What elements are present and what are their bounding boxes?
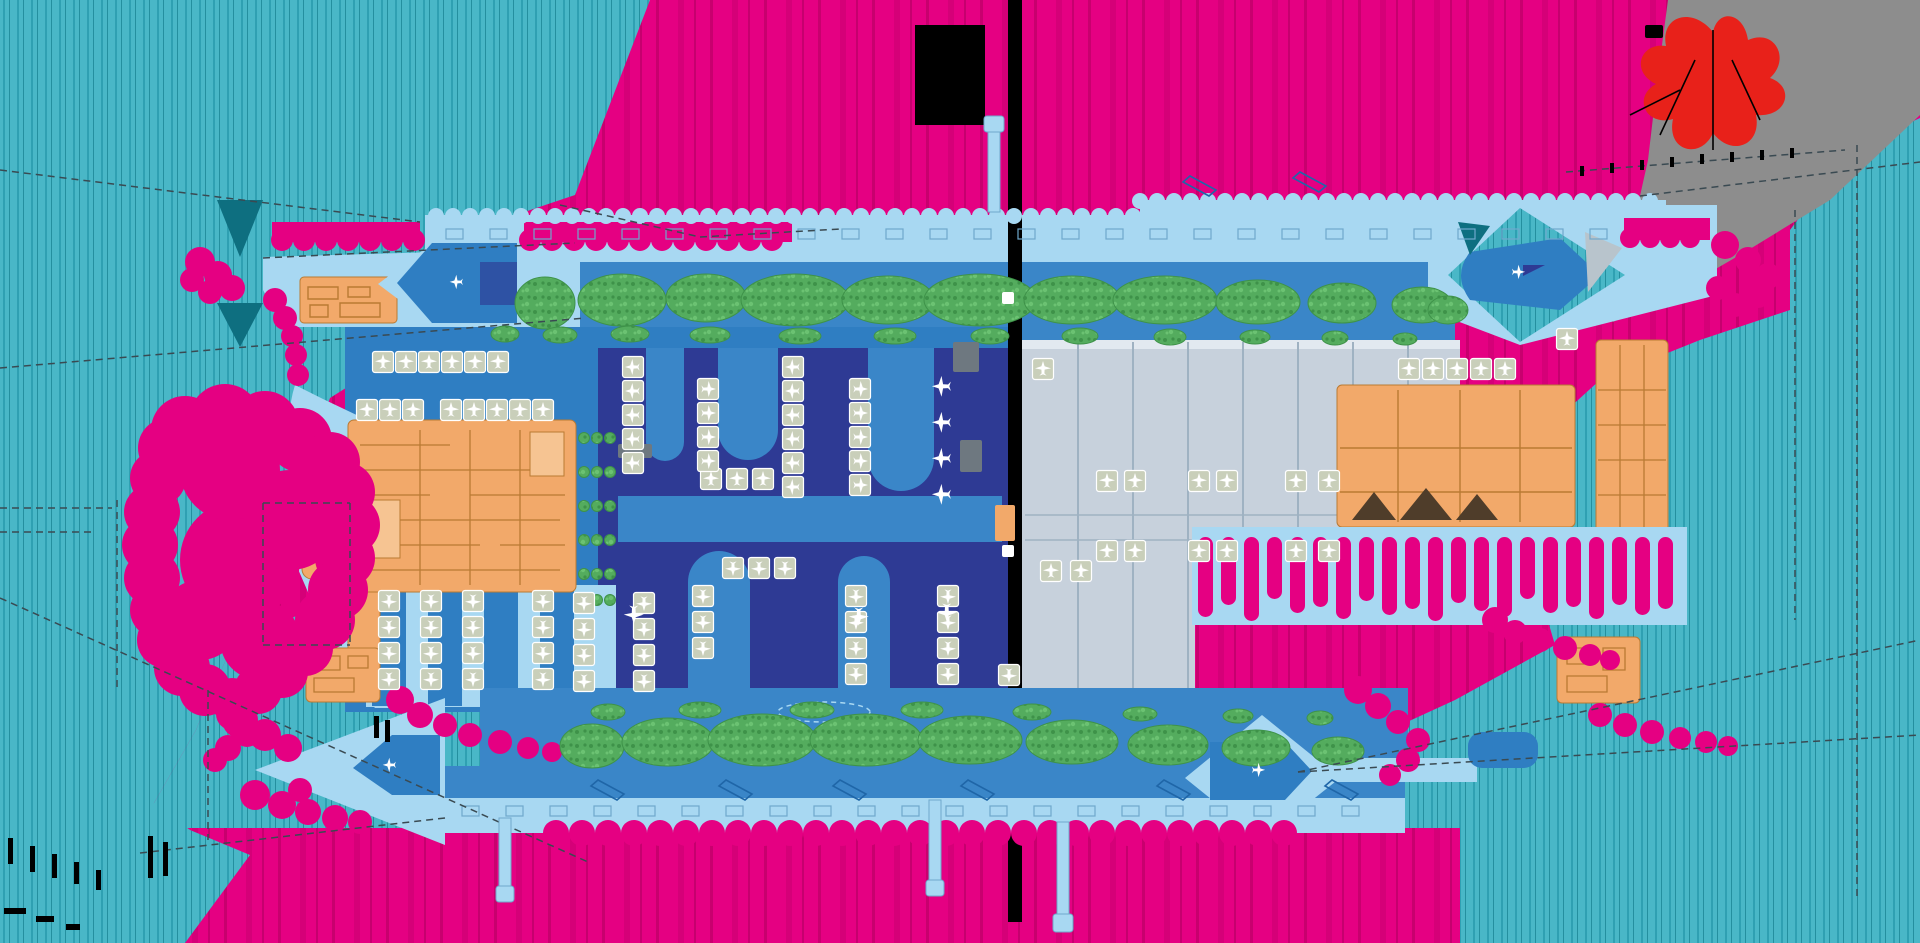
tree-comb-tooth: [1451, 537, 1466, 603]
tree-scallop: [547, 208, 563, 224]
tree-comb-tooth: [1474, 537, 1489, 611]
tree-scallop: [569, 820, 595, 846]
vegetation-blob: [1669, 727, 1691, 749]
se-end-blob: [1468, 732, 1538, 768]
vegetation-blob: [295, 799, 321, 825]
gate-stand-icon: [574, 645, 595, 666]
tree-comb-tooth: [1267, 537, 1282, 599]
tree-scallop: [1489, 193, 1505, 209]
tree-icon: [579, 569, 590, 580]
vegetation-blob: [542, 742, 562, 762]
gate-stand-icon: [1319, 471, 1340, 492]
tree-scallop: [1353, 193, 1369, 209]
gate-stand-icon: [1041, 561, 1062, 582]
tree-scallop: [595, 820, 621, 846]
garden-lawn: [810, 714, 922, 766]
tree-scallop: [1217, 193, 1233, 209]
gate-stand-icon: [938, 638, 959, 659]
garden-lawn: [1222, 730, 1290, 766]
tree-scallop: [1591, 193, 1607, 209]
jetty-head: [496, 886, 514, 902]
gate-stand-icon: [1217, 541, 1238, 562]
tree-scallop: [541, 229, 563, 251]
tree-scallop: [1625, 193, 1641, 209]
gate-stand-icon: [379, 617, 400, 638]
gate-stand-icon: [850, 451, 871, 472]
tree-scallop: [1166, 193, 1182, 209]
tree-scallop: [829, 820, 855, 846]
gate-stand-icon: [698, 379, 719, 400]
garden-lawn: [578, 274, 666, 326]
survey-tick: [66, 924, 80, 930]
tree-scallop: [1141, 820, 1167, 846]
vegetation-blob: [1396, 748, 1420, 772]
survey-tick: [374, 716, 379, 738]
tree-scallop: [563, 229, 585, 251]
tree-scallop: [700, 208, 716, 224]
gate-stand-icon: [464, 400, 485, 421]
vegetation-blob: [288, 778, 312, 802]
upper-channel-1: [646, 348, 684, 461]
vegetation-blob: [274, 734, 302, 762]
gate-stand-icon: [463, 643, 484, 664]
gate-stand-icon: [783, 429, 804, 450]
gate-stand-icon: [1399, 359, 1420, 380]
tree-scallop: [683, 208, 699, 224]
garden-lawn: [741, 274, 849, 326]
tree-scallop: [381, 229, 403, 251]
tree-scallop: [1540, 193, 1556, 209]
garden-lawn: [1307, 711, 1333, 725]
tree-scallop: [462, 208, 478, 224]
tree-comb-tooth: [1612, 537, 1627, 605]
gate-stand-icon: [783, 477, 804, 498]
garden-lawn: [1154, 329, 1186, 345]
gate-stand-icon: [1557, 329, 1578, 350]
gate-stand-icon: [533, 669, 554, 690]
tree-scallop: [802, 208, 818, 224]
tree-scallop: [819, 208, 835, 224]
garden-lawn: [901, 702, 943, 718]
gate-stand-icon: [421, 591, 442, 612]
tree-scallop: [1455, 193, 1471, 209]
gate-stand-icon: [698, 427, 719, 448]
tree-scallop: [803, 820, 829, 846]
tree-scallop: [739, 229, 761, 251]
gate-stand-icon: [1125, 471, 1146, 492]
vegetation-blob: [488, 730, 512, 754]
garden-lawn: [790, 702, 834, 718]
gate-stand-icon: [380, 400, 401, 421]
tree-scallop: [1234, 193, 1250, 209]
garden-lawn: [1024, 276, 1120, 324]
tree-comb-tooth: [1405, 537, 1420, 609]
tree-scallop: [479, 208, 495, 224]
tree-scallop: [853, 208, 869, 224]
tree-scallop: [1125, 208, 1141, 224]
tree-icon: [592, 501, 603, 512]
jetty-head: [1053, 914, 1073, 932]
garden-lawn: [842, 276, 934, 324]
tree-scallop: [1023, 208, 1039, 224]
tree-scallop: [1219, 820, 1245, 846]
tree-scallop: [1167, 820, 1193, 846]
gate-stand-icon: [850, 427, 871, 448]
garden-lawn: [690, 327, 730, 343]
tree-scallop: [881, 820, 907, 846]
vegetation-blob: [1503, 620, 1527, 644]
tree-icon: [579, 433, 590, 444]
phase-marker-block: [915, 25, 985, 125]
upper-channel-3: [868, 348, 934, 491]
vegetation-blob: [180, 268, 204, 292]
gate-stand-icon: [379, 591, 400, 612]
tree-icon: [592, 433, 603, 444]
vegetation-blob: [433, 713, 457, 737]
vegetation-blob: [322, 805, 348, 831]
gate-stand-icon: [1423, 359, 1444, 380]
tree-scallop: [777, 820, 803, 846]
tree-scallop: [651, 229, 673, 251]
gate-stand-icon: [488, 352, 509, 373]
tree-scallop: [629, 229, 651, 251]
vegetation-blob: [1600, 650, 1620, 670]
garden-lawn: [924, 274, 1036, 326]
gate-stand-icon: [846, 612, 867, 633]
tree-scallop: [855, 820, 881, 846]
garden-lawn: [1062, 328, 1098, 344]
gate-stand-icon: [1097, 471, 1118, 492]
east-orange-tall-building: [1596, 340, 1668, 532]
gate-stand-icon: [510, 400, 531, 421]
upper-channel-2: [718, 348, 778, 460]
tree-scallop: [887, 208, 903, 224]
tree-scallop: [673, 820, 699, 846]
garden-lawn: [1428, 296, 1468, 324]
tree-scallop: [428, 208, 444, 224]
gate-stand-icon: [533, 643, 554, 664]
gate-stand-icon: [1471, 359, 1492, 380]
gate-stand-icon: [727, 469, 748, 490]
gate-stand-icon: [574, 671, 595, 692]
tree-scallop: [673, 229, 695, 251]
survey-tick: [74, 862, 79, 884]
gate-stand-icon: [783, 357, 804, 378]
tree-icon: [592, 467, 603, 478]
garden-lawn: [1322, 331, 1348, 345]
gate-stand-icon: [846, 586, 867, 607]
gate-stand-icon: [693, 612, 714, 633]
gate-stand-icon: [1319, 541, 1340, 562]
tree-scallop: [607, 229, 629, 251]
tree-scallop: [1091, 208, 1107, 224]
survey-tick: [4, 908, 26, 914]
tree-scallop: [585, 229, 607, 251]
tree-icon: [605, 501, 616, 512]
tree-scallop: [768, 208, 784, 224]
gate-stand-icon: [698, 403, 719, 424]
garden-lawn: [1240, 330, 1270, 344]
tree-scallop: [904, 208, 920, 224]
tree-scallop: [1680, 228, 1700, 248]
gate-stand-icon: [1189, 541, 1210, 562]
tree-scallop: [725, 820, 751, 846]
tree-scallop: [666, 208, 682, 224]
gate-stand-icon: [357, 400, 378, 421]
tree-scallop: [1506, 193, 1522, 209]
garden-lawn: [918, 716, 1022, 764]
gate-stand-icon: [850, 475, 871, 496]
tree-scallop: [734, 208, 750, 224]
grayBlock-marker: [960, 440, 982, 472]
gate-stand-icon: [938, 586, 959, 607]
survey-tick: [1760, 150, 1764, 160]
tree-scallop: [985, 820, 1011, 846]
tree-scallop: [1183, 193, 1199, 209]
garden-lawn: [622, 718, 714, 766]
garden-lawn: [1308, 283, 1376, 323]
tree-scallop: [564, 208, 580, 224]
gate-stand-icon: [749, 558, 770, 579]
tree-icon: [579, 501, 590, 512]
vegetation-blob: [287, 364, 309, 386]
garden-lawn: [591, 704, 625, 720]
east-orange-logistics-building: [1337, 385, 1575, 527]
gate-stand-icon: [379, 643, 400, 664]
tree-scallop: [1040, 208, 1056, 224]
tree-scallop: [649, 208, 665, 224]
gate-stand-icon: [634, 645, 655, 666]
survey-tick: [1700, 154, 1704, 164]
gate-stand-icon: [623, 429, 644, 450]
gate-stand-icon: [533, 591, 554, 612]
white-marker: [1002, 545, 1014, 557]
vegetation-blob: [285, 344, 307, 366]
tree-scallop: [695, 229, 717, 251]
tree-scallop: [1268, 193, 1284, 209]
gate-stand-icon: [693, 638, 714, 659]
vegetation-blob: [1640, 720, 1664, 744]
tree-scallop: [972, 208, 988, 224]
tree-icon: [605, 595, 616, 606]
gate-stand-icon: [634, 671, 655, 692]
gate-stand-icon: [403, 400, 424, 421]
jetty-head: [926, 880, 944, 896]
tree-scallop: [293, 229, 315, 251]
vegetation-blob: [517, 737, 539, 759]
gate-stand-icon: [1125, 541, 1146, 562]
garden-lawn: [1123, 707, 1157, 721]
tree-scallop: [751, 208, 767, 224]
tree-scallop: [615, 208, 631, 224]
tree-scallop: [1245, 820, 1271, 846]
gate-stand-icon: [850, 379, 871, 400]
vegetation-blob: [240, 780, 270, 810]
tree-scallop: [1557, 193, 1573, 209]
white-marker: [1002, 292, 1014, 304]
tree-scallop: [1115, 820, 1141, 846]
tree-scallop: [1574, 193, 1590, 209]
tree-scallop: [359, 229, 381, 251]
tree-scallop: [1387, 193, 1403, 209]
tree-comb-tooth: [1658, 537, 1673, 609]
gate-stand-icon: [693, 586, 714, 607]
masterplan-svg: [0, 0, 1920, 943]
tree-scallop: [543, 820, 569, 846]
gate-stand-icon: [463, 617, 484, 638]
gate-stand-icon: [421, 617, 442, 638]
tree-comb-tooth: [1244, 537, 1259, 621]
vegetation-blob: [1579, 644, 1601, 666]
gate-stand-icon: [938, 664, 959, 685]
gate-stand-icon: [623, 405, 644, 426]
tree-scallop: [717, 208, 733, 224]
gate-stand-icon: [1286, 471, 1307, 492]
gate-stand-icon: [419, 352, 440, 373]
tree-scallop: [1302, 193, 1318, 209]
garden-lawn: [560, 724, 624, 768]
survey-tick: [1670, 157, 1674, 167]
gate-stand-icon: [783, 381, 804, 402]
garden-lawn: [1312, 737, 1364, 765]
survey-tick: [1580, 166, 1584, 176]
grayBlock-marker: [953, 342, 979, 372]
tree-scallop: [496, 208, 512, 224]
tree-scallop: [1319, 193, 1335, 209]
gate-stand-icon: [379, 669, 400, 690]
vegetation-blob: [1365, 693, 1391, 719]
garden-lawn: [515, 277, 575, 329]
garden-lawn: [708, 714, 816, 766]
survey-tick: [1610, 163, 1614, 173]
tree-scallop: [870, 208, 886, 224]
survey-tick: [1790, 148, 1794, 158]
tree-scallop: [647, 820, 673, 846]
tree-scallop: [751, 820, 777, 846]
survey-tick: [96, 870, 101, 890]
tree-icon: [605, 535, 616, 546]
tree-scallop: [699, 820, 725, 846]
tree-comb-tooth: [1359, 537, 1374, 601]
vegetation-blob: [180, 420, 280, 520]
black-marker: [1645, 25, 1663, 38]
tree-scallop: [1132, 193, 1148, 209]
gate-stand-icon: [442, 352, 463, 373]
survey-tick: [1640, 160, 1644, 170]
gate-stand-icon: [1033, 359, 1054, 380]
tree-scallop: [519, 229, 541, 251]
vegetation-blob: [1528, 628, 1552, 652]
gate-stand-icon: [634, 593, 655, 614]
garden-lawn: [491, 326, 519, 342]
tree-scallop: [1149, 193, 1165, 209]
gate-stand-icon: [698, 451, 719, 472]
gate-stand-icon: [396, 352, 417, 373]
gate-stand-icon: [487, 400, 508, 421]
garden-lawn: [1216, 280, 1300, 324]
vegetation-blob: [203, 748, 227, 772]
tree-scallop: [1370, 193, 1386, 209]
tree-scallop: [1336, 193, 1352, 209]
garden-lawn: [1026, 720, 1118, 764]
garden-lawn: [1113, 276, 1217, 324]
garden-lawn: [971, 328, 1009, 344]
gate-stand-icon: [421, 643, 442, 664]
tree-icon: [605, 569, 616, 580]
vegetation-blob: [1613, 713, 1637, 737]
tree-scallop: [445, 208, 461, 224]
gate-stand-icon: [623, 453, 644, 474]
tree-icon: [579, 535, 590, 546]
tree-scallop: [1271, 820, 1297, 846]
tree-scallop: [513, 208, 529, 224]
survey-tick: [30, 846, 35, 872]
tree-scallop: [337, 229, 359, 251]
survey-tick: [1730, 152, 1734, 162]
garden-lawn: [1223, 709, 1253, 723]
gate-stand-icon: [783, 453, 804, 474]
gate-stand-icon: [753, 469, 774, 490]
tree-scallop: [1006, 208, 1022, 224]
tree-scallop: [621, 820, 647, 846]
survey-tick: [36, 916, 54, 922]
gate-stand-icon: [623, 357, 644, 378]
vegetation-blob: [220, 600, 300, 680]
garden-lawn: [779, 328, 821, 344]
gate-stand-icon: [1217, 471, 1238, 492]
garden-lawn: [874, 328, 916, 344]
tree-scallop: [1472, 193, 1488, 209]
tree-scallop: [1074, 208, 1090, 224]
gate-stand-icon: [775, 558, 796, 579]
site-plan-canvas: [0, 0, 1920, 943]
garden-lawn: [679, 702, 721, 718]
tree-comb-tooth: [1520, 537, 1535, 599]
vegetation-blob: [1723, 293, 1747, 317]
tree-scallop: [921, 208, 937, 224]
gate-stand-icon: [533, 400, 554, 421]
tree-scallop: [403, 229, 425, 251]
gate-stand-icon: [1189, 471, 1210, 492]
tree-scallop: [1193, 820, 1219, 846]
tree-comb-tooth: [1635, 537, 1650, 615]
tree-scallop: [1089, 820, 1115, 846]
tree-icon: [579, 467, 590, 478]
tree-icon: [605, 467, 616, 478]
orange-marker: [995, 505, 1015, 541]
tree-scallop: [1640, 228, 1660, 248]
survey-tick: [163, 842, 168, 876]
tree-scallop: [1285, 193, 1301, 209]
garden-lawn: [666, 274, 746, 322]
tree-scallop: [1660, 228, 1680, 248]
gate-stand-icon: [421, 669, 442, 690]
tree-scallop: [1438, 193, 1454, 209]
tree-scallop: [1608, 193, 1624, 209]
tree-comb-tooth: [1543, 537, 1558, 613]
tree-scallop: [1421, 193, 1437, 209]
gate-stand-icon: [846, 638, 867, 659]
tree-scallop: [271, 229, 293, 251]
cross-channel: [618, 496, 1002, 542]
jetty-stem: [988, 132, 1000, 212]
tree-scallop: [1620, 228, 1640, 248]
tree-scallop: [598, 208, 614, 224]
jetty-head: [984, 116, 1004, 132]
tree-comb-tooth: [1566, 537, 1581, 607]
tree-scallop: [1251, 193, 1267, 209]
tree-comb-tooth: [1497, 537, 1512, 617]
